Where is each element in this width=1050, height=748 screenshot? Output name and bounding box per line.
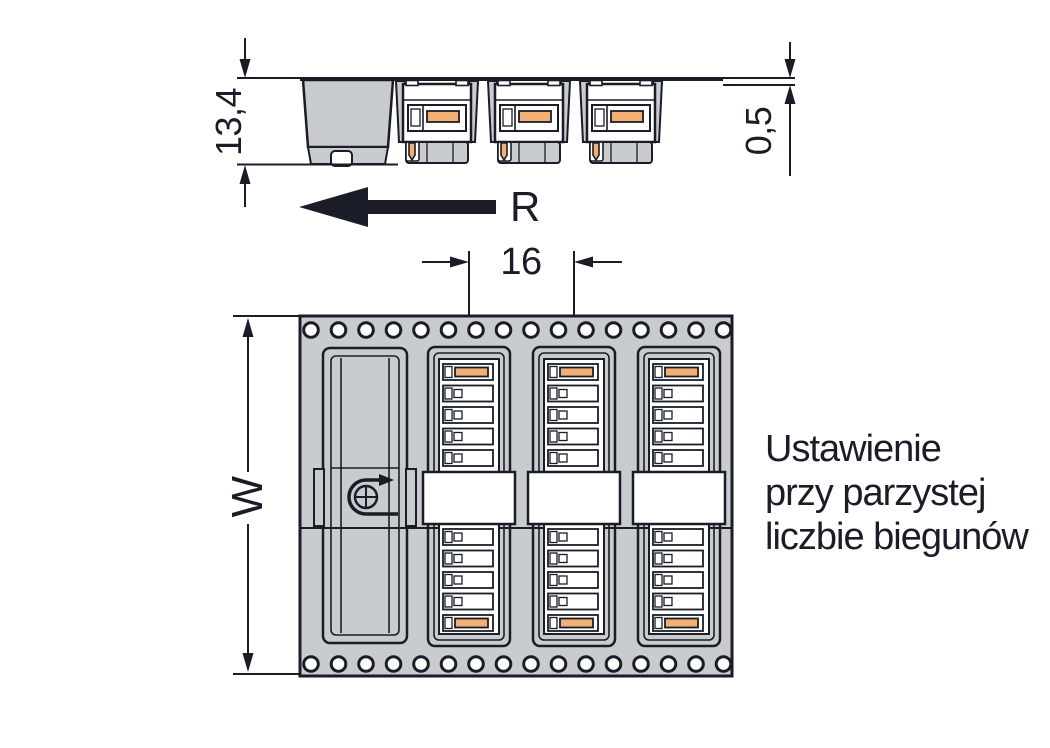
- width-dim-label: W: [223, 476, 272, 518]
- connector-side-1: [396, 81, 478, 164]
- pitch-dim-label: 16: [500, 241, 541, 283]
- registration-mark-icon: [354, 485, 378, 509]
- connector-side-3: [580, 81, 662, 164]
- note-line-1: Ustawienie: [765, 428, 941, 470]
- dim-0-5-label: 0,5: [738, 107, 779, 156]
- connector-side-2: [488, 81, 570, 164]
- technical-drawing-page: 13,4 0,5 R 16: [0, 0, 1050, 748]
- note-line-3: liczbie biegunów: [765, 516, 1029, 558]
- connector-tape-drawing: 13,4 0,5 R 16: [0, 0, 1050, 748]
- direction-label: R: [510, 183, 540, 230]
- note-text: Ustawienie przy parzystej liczbie biegun…: [765, 428, 1029, 558]
- dim-13-4-label: 13,4: [208, 88, 249, 156]
- dimension-13-4: 13,4: [208, 38, 251, 207]
- note-line-2: przy parzystej: [765, 472, 985, 514]
- empty-pocket-side: [303, 80, 393, 166]
- direction-arrow: R: [299, 183, 540, 230]
- side-view: 13,4 0,5 R: [208, 38, 796, 230]
- tape-top-view: W: [223, 316, 732, 676]
- dimension-w: W: [223, 316, 300, 674]
- dimension-0-5: 0,5: [738, 42, 796, 176]
